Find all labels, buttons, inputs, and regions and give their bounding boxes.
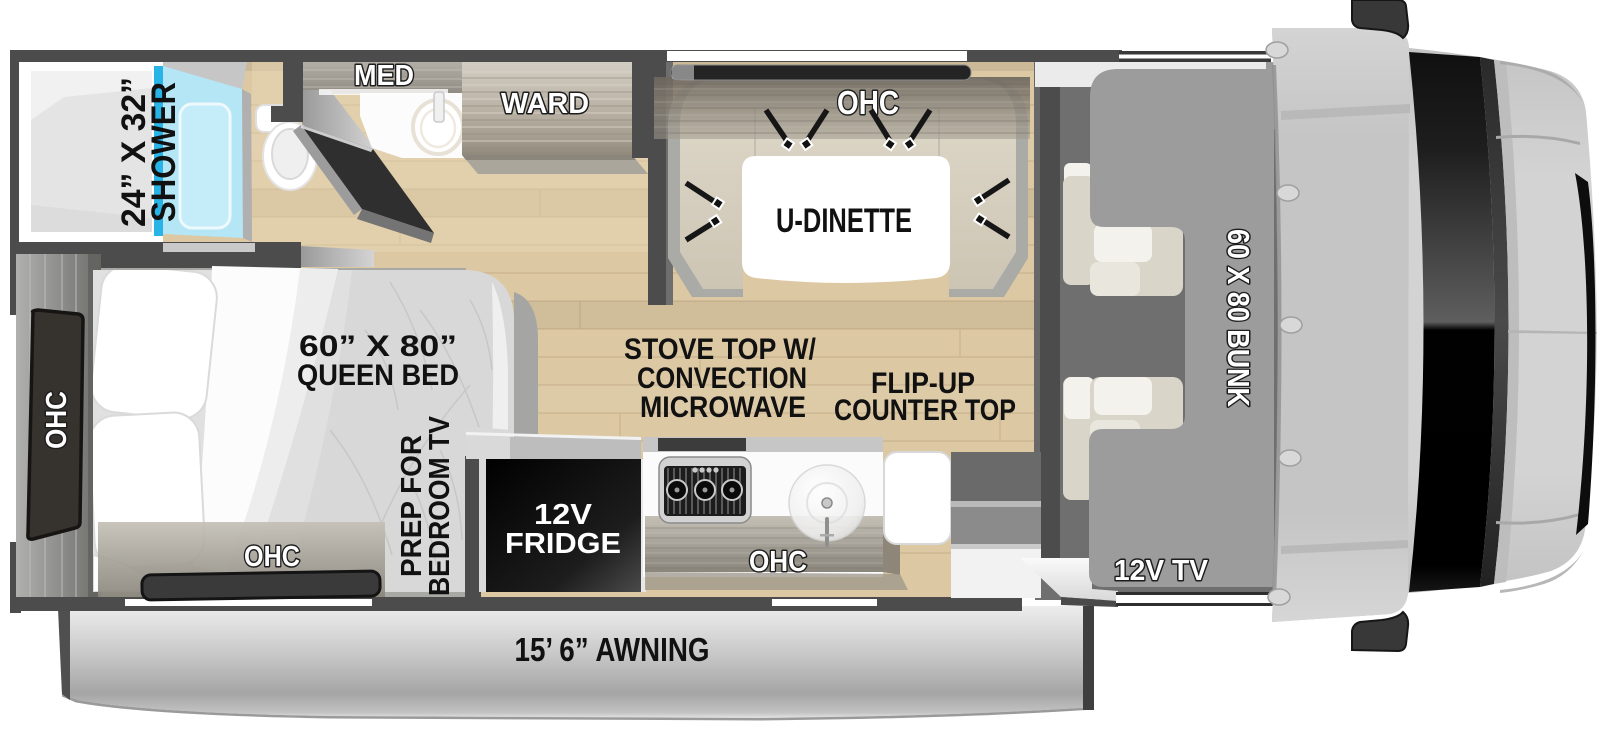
svg-text:QUEEN BED: QUEEN BED (297, 359, 459, 392)
svg-text:OHC: OHC (749, 546, 807, 578)
svg-text:12V: 12V (534, 499, 593, 531)
svg-text:OHC: OHC (244, 541, 300, 573)
svg-text:WARD: WARD (501, 88, 589, 120)
svg-text:SHOWER: SHOWER (145, 82, 183, 222)
svg-text:COUNTER TOP: COUNTER TOP (834, 394, 1016, 427)
svg-text:FRIDGE: FRIDGE (505, 528, 621, 560)
svg-text:MED: MED (354, 60, 414, 92)
svg-text:15’ 6” AWNING: 15’ 6” AWNING (515, 631, 710, 668)
svg-text:MICROWAVE: MICROWAVE (640, 391, 806, 424)
svg-text:60 X 80 BUNK: 60 X 80 BUNK (1221, 229, 1256, 408)
svg-text:12V TV: 12V TV (1114, 555, 1209, 587)
svg-text:OHC: OHC (41, 391, 73, 449)
svg-text:OHC: OHC (837, 84, 899, 121)
svg-text:U-DINETTE: U-DINETTE (776, 202, 912, 240)
svg-text:BEDROOM TV: BEDROOM TV (424, 415, 456, 596)
